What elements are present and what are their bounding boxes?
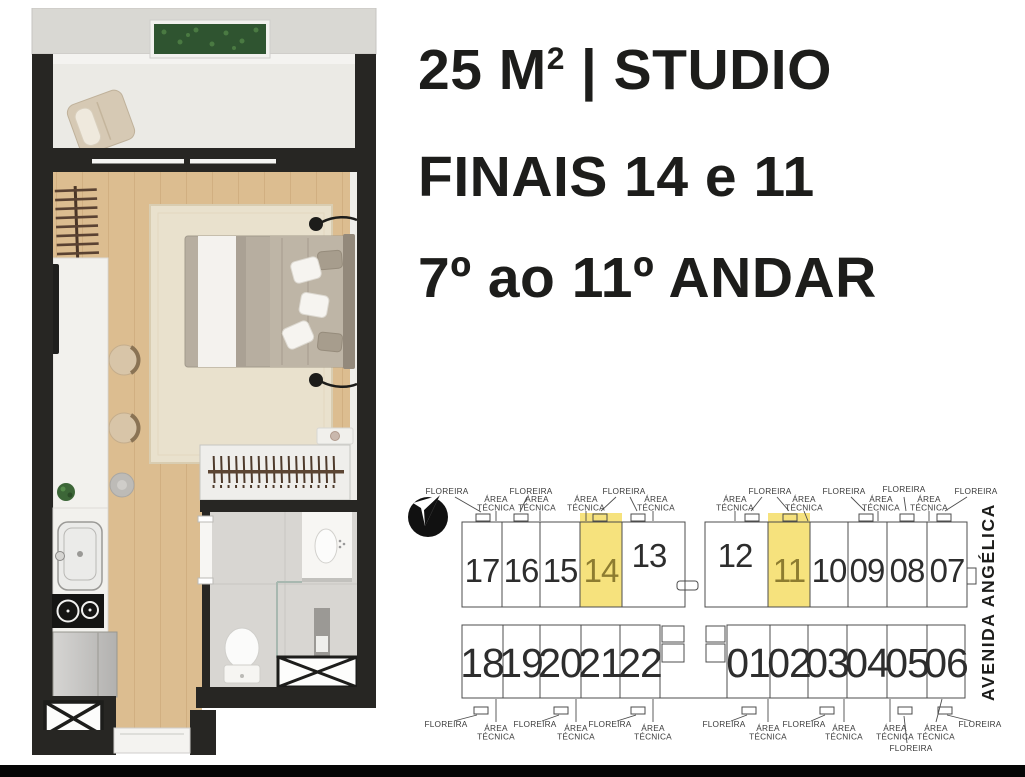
counter-stool-2 bbox=[109, 413, 139, 443]
annotation-label: ÁREATÉCNICA bbox=[910, 494, 948, 512]
balcony bbox=[32, 8, 376, 160]
right-wall bbox=[357, 54, 376, 708]
annotation-label: ÁREATÉCNICA bbox=[825, 723, 863, 741]
annotation-label: FLOREIRA bbox=[602, 486, 645, 496]
unit-number-04: 04 bbox=[845, 640, 889, 686]
annotation-label: ÁREATÉCNICA bbox=[749, 723, 787, 741]
toilet bbox=[224, 628, 260, 683]
entry-door bbox=[114, 728, 190, 753]
unit-number-07: 07 bbox=[930, 552, 965, 589]
annotation-label: ÁREATÉCNICA bbox=[876, 723, 914, 741]
annotation-label: FLOREIRA bbox=[425, 486, 468, 496]
sliding-glass-door bbox=[53, 148, 357, 174]
headline-area: 25 M2 | STUDIO bbox=[418, 42, 832, 99]
area-superscript: 2 bbox=[547, 40, 565, 76]
floreira-boxes-bottom bbox=[474, 707, 952, 714]
unit-numbers: 1716151413121110090807181920212201020304… bbox=[460, 537, 968, 686]
unit-number-11: 11 bbox=[773, 552, 805, 589]
bottom-bar bbox=[0, 765, 1025, 777]
area-value: 25 M bbox=[418, 38, 547, 102]
annotation-label: FLOREIRA bbox=[748, 486, 791, 496]
unit-number-03: 03 bbox=[805, 640, 849, 686]
unit-number-20: 20 bbox=[538, 640, 582, 686]
street-label: AVENIDA ANGÉLICA bbox=[977, 503, 998, 701]
floor-plan bbox=[30, 8, 378, 756]
annotation-label: ÁREATÉCNICA bbox=[637, 494, 675, 512]
annotation-label: ÁREATÉCNICA bbox=[518, 494, 556, 512]
unit-number-19: 19 bbox=[499, 640, 543, 686]
annotation-label: FLOREIRA bbox=[954, 486, 997, 496]
unit-number-16: 16 bbox=[504, 552, 539, 589]
building-outline bbox=[454, 497, 976, 743]
north-arrow-icon bbox=[408, 495, 448, 537]
unit-number-12: 12 bbox=[718, 537, 753, 574]
unit-number-08: 08 bbox=[890, 552, 925, 589]
kitchen-sink bbox=[56, 522, 103, 590]
refrigerator bbox=[53, 632, 117, 697]
area-rest: | STUDIO bbox=[564, 38, 831, 102]
nightstand bbox=[317, 428, 353, 444]
annotation-label: FLOREIRA bbox=[782, 719, 825, 729]
unit-number-21: 21 bbox=[578, 640, 622, 686]
annotation-label: FLOREIRA bbox=[958, 719, 1001, 729]
wardrobe-rack bbox=[200, 445, 350, 500]
unit-number-18: 18 bbox=[460, 640, 504, 686]
bathroom bbox=[196, 512, 376, 708]
planter-box bbox=[150, 20, 270, 58]
bathroom-vanity bbox=[302, 512, 352, 582]
annotation-label: ÁREATÉCNICA bbox=[917, 723, 955, 741]
unit-number-10: 10 bbox=[812, 552, 847, 589]
bathroom-shaft bbox=[278, 657, 357, 687]
pouf bbox=[110, 473, 134, 497]
unit-number-17: 17 bbox=[465, 552, 500, 589]
headline-floors: 7º ao 11º ANDAR bbox=[418, 250, 877, 307]
kitchen-counter bbox=[53, 258, 108, 508]
unit-number-09: 09 bbox=[850, 552, 885, 589]
floreira-boxes-top bbox=[476, 514, 951, 521]
potted-plant bbox=[57, 483, 75, 501]
annotation-label: ÁREATÉCNICA bbox=[634, 723, 672, 741]
unit-number-05: 05 bbox=[885, 640, 929, 686]
annotation-label: FLOREIRA bbox=[513, 719, 556, 729]
unit-number-22: 22 bbox=[618, 640, 662, 686]
left-wall bbox=[32, 54, 53, 755]
annotation-label: ÁREATÉCNICA bbox=[477, 494, 515, 512]
annotation-labels: FLOREIRAÁREATÉCNICAFLOREIRAÁREATÉCNICAÁR… bbox=[424, 484, 1001, 753]
unit-number-06: 06 bbox=[924, 640, 968, 686]
annotation-label: ÁREATÉCNICA bbox=[567, 494, 605, 512]
unit-number-01: 01 bbox=[726, 640, 770, 686]
annotation-label: FLOREIRA bbox=[424, 719, 467, 729]
counter-stool-1 bbox=[109, 345, 139, 375]
cooktop bbox=[52, 594, 104, 628]
annotation-label: ÁREATÉCNICA bbox=[785, 494, 823, 512]
unit-number-14: 14 bbox=[584, 552, 619, 589]
unit-number-13: 13 bbox=[632, 537, 667, 574]
unit-number-15: 15 bbox=[543, 552, 578, 589]
annotation-label: ÁREATÉCNICA bbox=[862, 494, 900, 512]
annotation-label: FLOREIRA bbox=[822, 486, 865, 496]
annotation-label: FLOREIRA bbox=[702, 719, 745, 729]
annotation-label: FLOREIRA bbox=[882, 484, 925, 494]
annotation-label: FLOREIRA bbox=[588, 719, 631, 729]
annotation-label: FLOREIRA bbox=[889, 743, 932, 753]
double-bed bbox=[185, 234, 355, 369]
page: 25 M2 | STUDIO FINAIS 14 e 11 7º ao 11º … bbox=[0, 0, 1025, 777]
annotation-label: ÁREATÉCNICA bbox=[716, 494, 754, 512]
annotation-label: ÁREATÉCNICA bbox=[477, 723, 515, 741]
key-plan: AVENIDA ANGÉLICA 17161514131211100908071… bbox=[400, 480, 1025, 777]
headline-finals: FINAIS 14 e 11 bbox=[418, 149, 815, 206]
